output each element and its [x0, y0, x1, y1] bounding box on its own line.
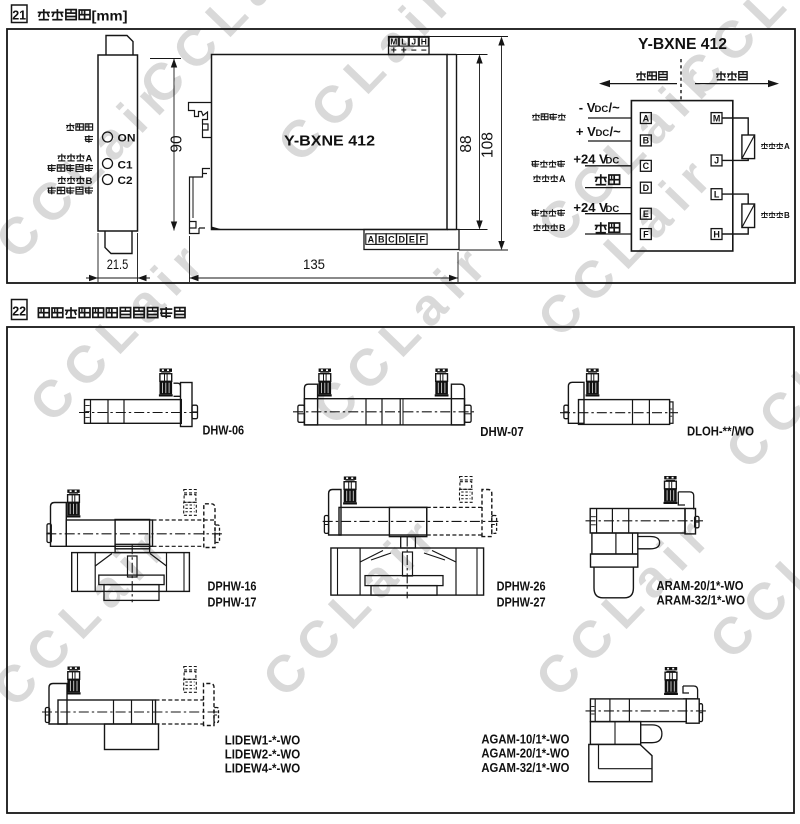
svg-text:LIDEW1-*-WO: LIDEW1-*-WO: [225, 733, 301, 748]
svg-text:+24 V: +24 V: [573, 200, 608, 215]
svg-text:L: L: [714, 189, 720, 199]
svg-text:E: E: [409, 235, 415, 245]
svg-text:B: B: [378, 235, 385, 245]
svg-text:DHW-06: DHW-06: [203, 423, 245, 438]
svg-text:+24 V: +24 V: [573, 151, 608, 166]
svg-text:22: 22: [12, 305, 26, 319]
svg-text:DHW-07: DHW-07: [480, 424, 523, 439]
svg-text:DPHW-16: DPHW-16: [208, 579, 257, 594]
svg-text:/~: /~: [610, 124, 622, 139]
svg-text:B: B: [784, 211, 790, 220]
svg-text:+: +: [401, 46, 407, 57]
svg-text:[mm]: [mm]: [92, 9, 128, 24]
svg-text:AGAM-20/1*-WO: AGAM-20/1*-WO: [481, 746, 569, 761]
svg-text:DC: DC: [595, 104, 609, 115]
svg-text:DC: DC: [596, 128, 610, 139]
svg-text:C1: C1: [118, 160, 133, 172]
svg-text:AGAM-32/1*-WO: AGAM-32/1*-WO: [481, 760, 569, 775]
svg-text:88: 88: [458, 135, 475, 152]
svg-text:DC: DC: [606, 204, 620, 215]
svg-text:C: C: [643, 161, 650, 171]
svg-text:DC: DC: [606, 155, 620, 166]
svg-text:21: 21: [12, 9, 26, 23]
svg-text:ON: ON: [118, 133, 136, 145]
svg-text:LIDEW4-*-WO: LIDEW4-*-WO: [225, 761, 301, 776]
svg-text:ARAM-32/1*-WO: ARAM-32/1*-WO: [657, 593, 746, 608]
svg-text:108: 108: [480, 132, 497, 158]
svg-text:D: D: [643, 183, 650, 193]
svg-text:A: A: [368, 235, 375, 245]
svg-text:+ V: + V: [576, 124, 596, 139]
svg-text:LIDEW2-*-WO: LIDEW2-*-WO: [225, 747, 301, 762]
svg-text:H: H: [713, 229, 720, 239]
svg-text:/~: /~: [609, 100, 621, 115]
svg-text:E: E: [643, 209, 649, 219]
svg-text:F: F: [419, 235, 425, 245]
svg-text:A: A: [643, 113, 650, 123]
svg-text:B: B: [86, 176, 93, 187]
svg-text:135: 135: [303, 257, 325, 272]
svg-text:- V: - V: [579, 100, 596, 115]
svg-text:+: +: [391, 46, 397, 57]
svg-text:DPHW-26: DPHW-26: [497, 579, 546, 594]
svg-text:A: A: [86, 154, 93, 165]
svg-text:B: B: [643, 136, 650, 146]
svg-text:C: C: [388, 235, 395, 245]
svg-text:C2: C2: [118, 175, 133, 187]
svg-text:D: D: [398, 235, 405, 245]
svg-text:ARAM-20/1*-WO: ARAM-20/1*-WO: [657, 578, 744, 593]
svg-text:DPHW-27: DPHW-27: [497, 595, 546, 610]
svg-text:Y-BXNE 412: Y-BXNE 412: [638, 36, 727, 53]
svg-text:J: J: [714, 156, 719, 166]
svg-text:90: 90: [169, 135, 186, 153]
svg-text:−: −: [421, 46, 427, 57]
svg-text:A: A: [559, 174, 566, 184]
svg-text:F: F: [643, 229, 649, 239]
svg-text:B: B: [559, 223, 566, 233]
svg-text:−: −: [411, 46, 417, 57]
svg-text:M: M: [713, 113, 721, 123]
svg-text:Y-BXNE 412: Y-BXNE 412: [284, 133, 375, 150]
svg-text:21.5: 21.5: [107, 257, 129, 272]
svg-text:AGAM-10/1*-WO: AGAM-10/1*-WO: [481, 732, 569, 747]
svg-text:DPHW-17: DPHW-17: [208, 595, 257, 610]
svg-text:DLOH-**/WO: DLOH-**/WO: [687, 424, 754, 439]
svg-text:A: A: [784, 142, 790, 151]
